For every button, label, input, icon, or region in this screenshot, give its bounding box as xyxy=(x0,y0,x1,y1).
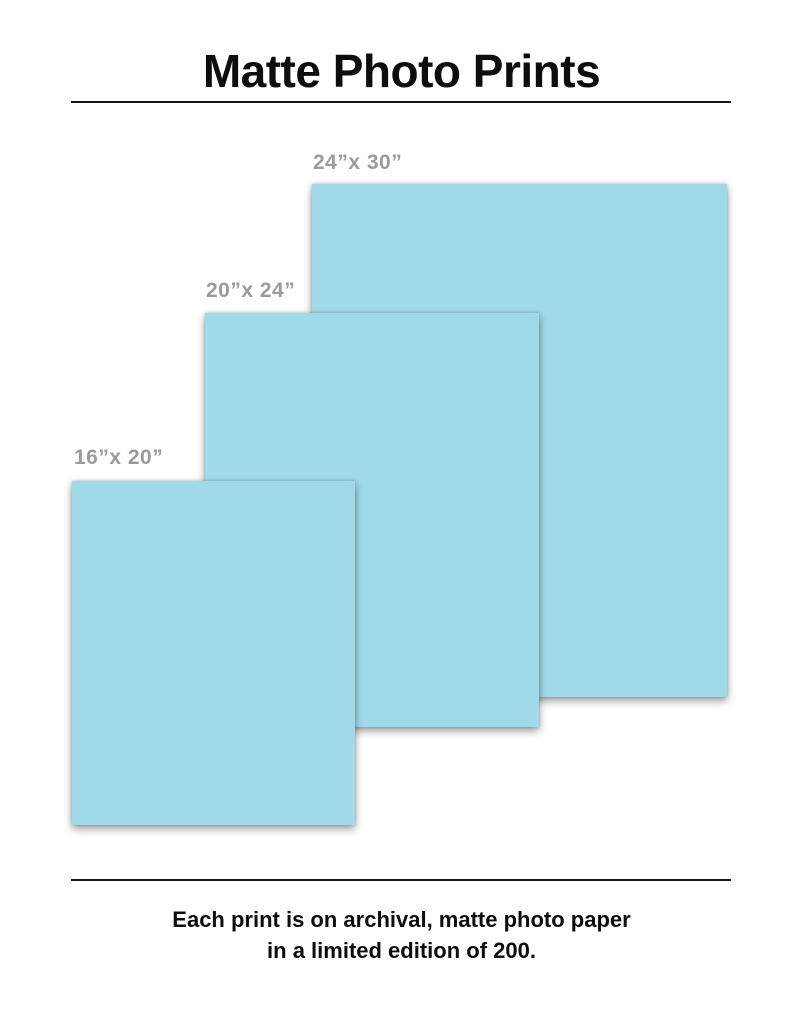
top-divider xyxy=(71,101,731,103)
size-label-16x20: 16”x 20” xyxy=(74,446,163,470)
matte-prints-poster: Matte Photo Prints 24”x 30” 20”x 24” 16”… xyxy=(0,0,803,1026)
page-title: Matte Photo Prints xyxy=(0,44,803,98)
size-label-24x30: 24”x 30” xyxy=(313,151,402,175)
caption-line-2: in a limited edition of 200. xyxy=(0,935,803,966)
caption-line-1: Each print is on archival, matte photo p… xyxy=(0,904,803,935)
footer-caption: Each print is on archival, matte photo p… xyxy=(0,904,803,966)
bottom-divider xyxy=(71,879,731,881)
size-label-20x24: 20”x 24” xyxy=(206,279,295,303)
print-rect-16x20 xyxy=(72,481,355,825)
